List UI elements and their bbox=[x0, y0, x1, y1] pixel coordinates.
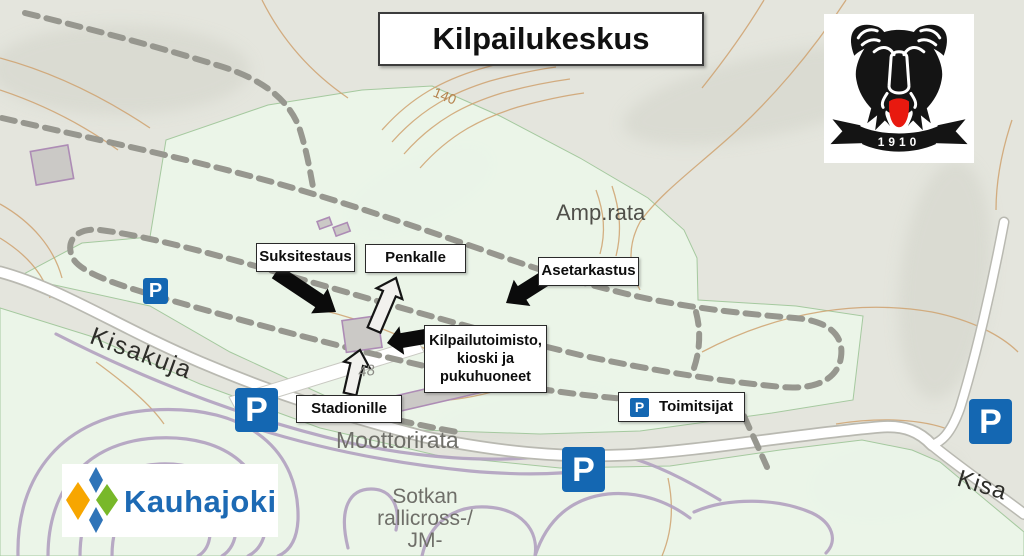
callout-suksitestaus: Suksitestaus bbox=[256, 243, 355, 272]
callout-toimitsijat-label: Toimitsijat bbox=[659, 398, 733, 417]
competition-center-map: Amp.rata Kisakuja Moottorirata Sotkan ra… bbox=[0, 0, 1024, 556]
title-box: Kilpailukeskus bbox=[378, 12, 704, 66]
callout-kilpailutoimisto: Kilpailutoimisto, kioski ja pukuhuoneet bbox=[424, 325, 547, 393]
callout-stadionille-label: Stadionille bbox=[311, 400, 387, 419]
page-title: Kilpailukeskus bbox=[432, 21, 649, 57]
callout-asetarkastus-label: Asetarkastus bbox=[541, 262, 635, 281]
kauhajoki-logo-text: Kauhajoki bbox=[124, 484, 277, 519]
parking-letter: P bbox=[572, 453, 595, 487]
kauhajoki-logo-icon: Kauhajoki bbox=[62, 464, 278, 537]
callout-penkalle: Penkalle bbox=[365, 244, 466, 273]
bear-emblem-icon: 1910 bbox=[824, 14, 974, 163]
parking-letter: P bbox=[635, 400, 644, 414]
label-sotkan-line1: Sotkan bbox=[340, 486, 510, 508]
bear-tongue bbox=[889, 98, 909, 127]
label-amp-rata: Amp.rata bbox=[556, 200, 645, 226]
callout-stadionille: Stadionille bbox=[296, 395, 402, 423]
building-northwest bbox=[30, 145, 73, 185]
parking-letter: P bbox=[149, 281, 162, 301]
callout-kilpailutoimisto-line1: Kilpailutoimisto, bbox=[429, 332, 542, 350]
label-elevation-48: 48 bbox=[357, 362, 376, 381]
label-sotkan-rallicross: Sotkan rallicross-/ JM- bbox=[340, 486, 510, 552]
parking-icon: P bbox=[630, 398, 649, 417]
callout-suksitestaus-label: Suksitestaus bbox=[259, 248, 352, 267]
parking-sign-west: P bbox=[143, 278, 168, 304]
parking-letter: P bbox=[979, 405, 1002, 439]
callout-penkalle-label: Penkalle bbox=[385, 249, 446, 268]
parking-sign-east: P bbox=[969, 399, 1012, 444]
club-year-text: 1910 bbox=[878, 135, 920, 149]
callout-toimitsijat: P Toimitsijat bbox=[618, 392, 745, 422]
label-sotkan-line2: rallicross-/ bbox=[340, 508, 510, 530]
callout-asetarkastus: Asetarkastus bbox=[538, 257, 639, 286]
label-sotkan-line3: JM- bbox=[340, 530, 510, 552]
label-moottorirata: Moottorirata bbox=[336, 427, 459, 454]
parking-letter: P bbox=[245, 393, 268, 427]
parking-sign-south: P bbox=[562, 447, 605, 492]
club-emblem: 1910 bbox=[824, 14, 974, 163]
parking-sign-stadium: P bbox=[235, 388, 278, 432]
callout-kilpailutoimisto-line2: kioski ja bbox=[457, 350, 514, 368]
kauhajoki-logo: Kauhajoki bbox=[62, 464, 278, 537]
callout-kilpailutoimisto-line3: pukuhuoneet bbox=[440, 368, 531, 386]
